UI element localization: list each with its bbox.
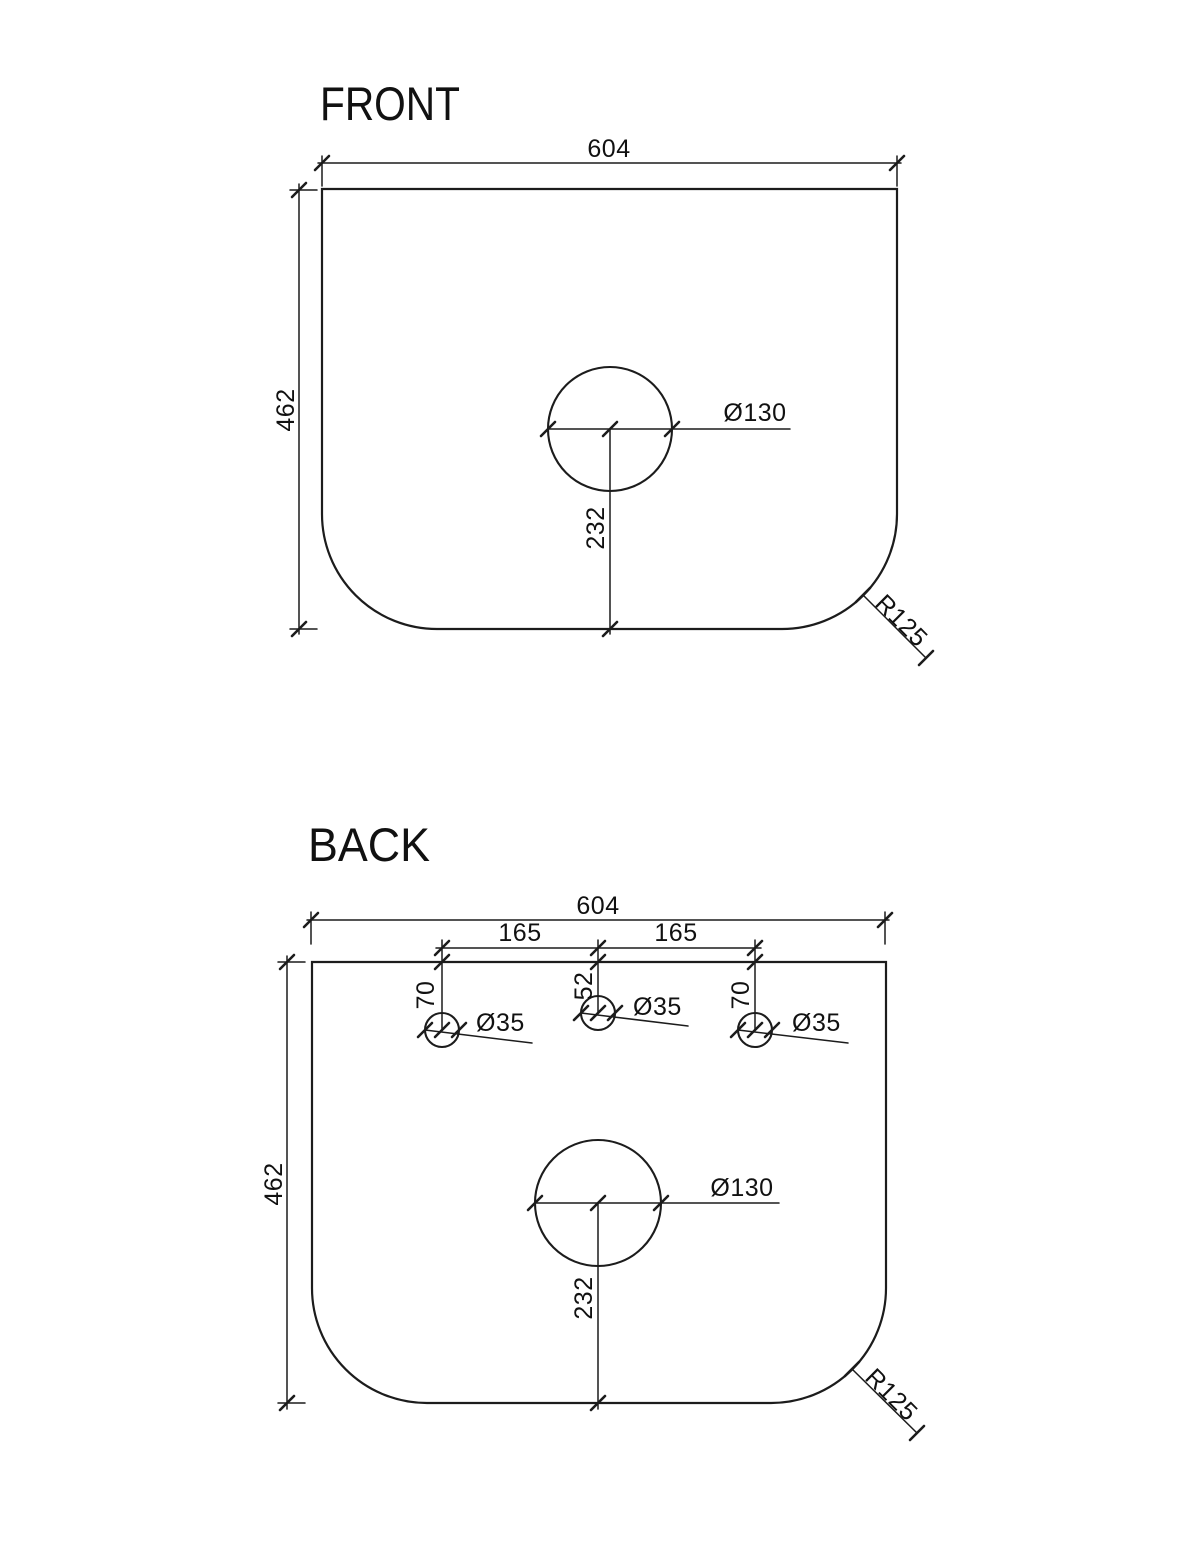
back-tap-spacing-left-label: 165	[498, 919, 541, 947]
back-tap-diameter-left-label: Ø35	[476, 1009, 525, 1037]
back-tap-diameter-center-label: Ø35	[633, 993, 682, 1021]
back-tap-offset-center-label: 52	[570, 972, 598, 1001]
back-basin-diameter-label: Ø130	[710, 1174, 773, 1202]
front-view-title: FRONT	[320, 77, 460, 130]
front-view-linework	[290, 156, 933, 665]
front-hole-offset-label: 232	[582, 506, 610, 549]
back-tap-diameter-right-label: Ø35	[792, 1009, 841, 1037]
technical-drawing-canvas: FRONT 604 462 Ø130 232 R125 BACK 604 165…	[0, 0, 1202, 1559]
technical-drawing-page: FRONT 604 462 Ø130 232 R125 BACK 604 165…	[0, 0, 1202, 1559]
back-width-label: 604	[576, 892, 619, 920]
front-width-label: 604	[587, 135, 630, 163]
back-view-title: BACK	[308, 818, 430, 871]
back-corner-radius-label: R125	[860, 1363, 923, 1426]
back-view-linework	[278, 912, 924, 1440]
drawing-labels: FRONT 604 462 Ø130 232 R125 BACK 604 165…	[260, 77, 933, 1427]
back-tap-offset-right-label: 70	[727, 981, 755, 1010]
back-tap-spacing-right-label: 165	[654, 919, 697, 947]
front-height-label: 462	[272, 388, 300, 431]
back-hole-offset-label: 232	[570, 1276, 598, 1319]
front-corner-radius-label: R125	[870, 589, 933, 652]
back-tap-offset-left-label: 70	[412, 981, 440, 1010]
front-basin-diameter-label: Ø130	[723, 399, 786, 427]
back-height-label: 462	[260, 1162, 288, 1205]
drawing-linework	[278, 156, 933, 1440]
